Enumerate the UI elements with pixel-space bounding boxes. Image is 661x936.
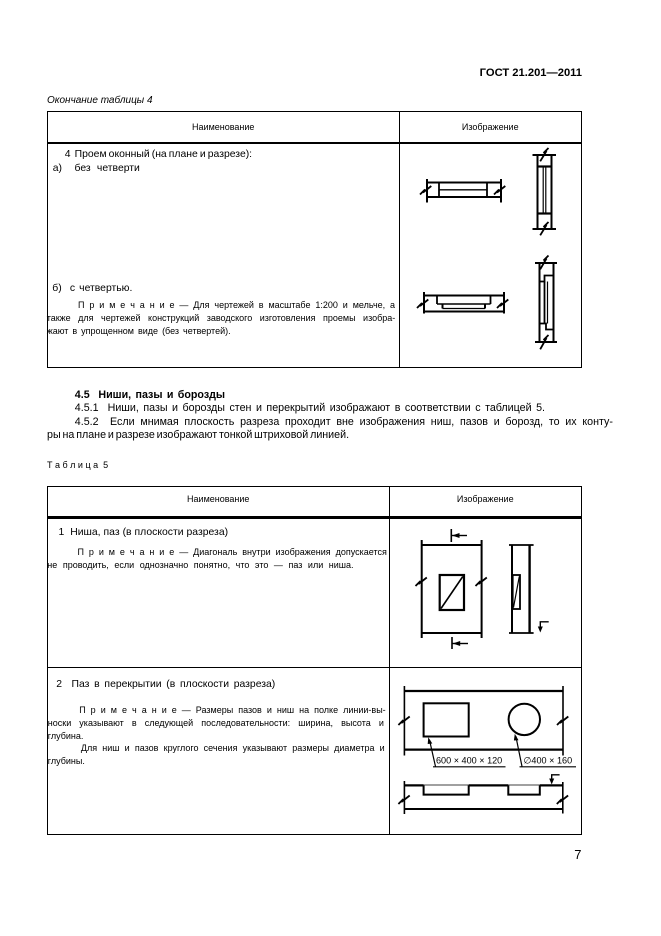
svg-text:600 × 400 × 120: 600 × 400 × 120 bbox=[436, 756, 502, 766]
svg-text:∅400 × 160: ∅400 × 160 bbox=[524, 756, 573, 766]
